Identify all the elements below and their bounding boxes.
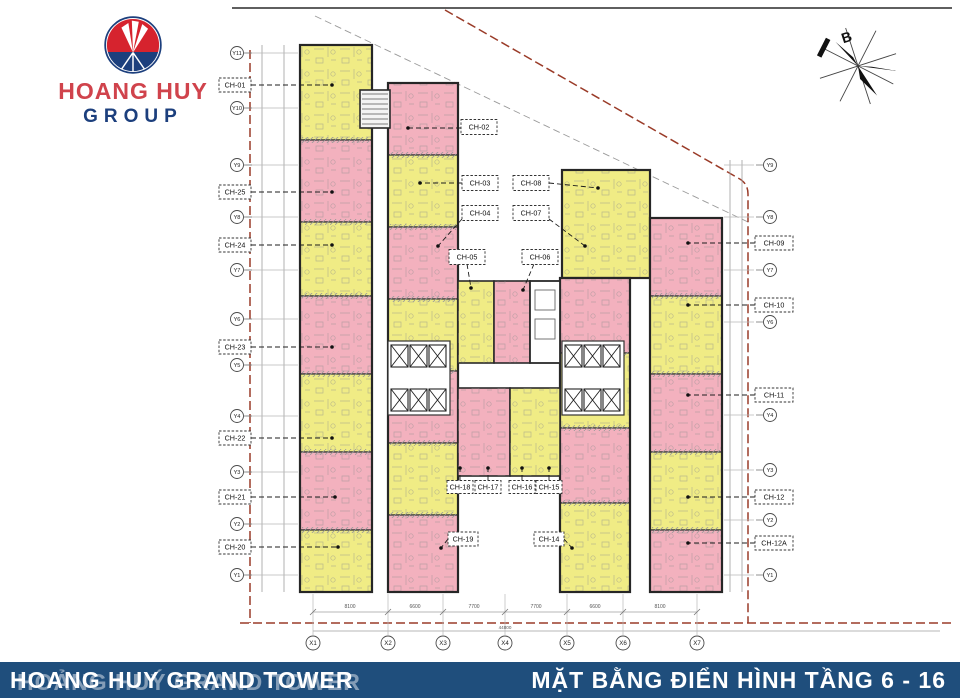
leader-dot (570, 546, 574, 550)
dimension-text: 7700 (468, 604, 479, 610)
leader-dot (330, 243, 334, 247)
leader-dot (596, 186, 600, 190)
leader-dot (330, 83, 334, 87)
unit-furniture-detail (300, 452, 372, 530)
project-title-text: HOANG HUY GRAND TOWER (10, 667, 353, 693)
balcony-hatch (562, 500, 628, 506)
unit-furniture-detail (510, 388, 560, 476)
unit-label: CH-23 (225, 343, 246, 352)
unit-label: CH-12A (761, 539, 787, 548)
axis-bubble-label: Y3 (234, 470, 241, 476)
leader-dot (458, 466, 462, 470)
footer-bar: HOẢNG HUÝ GRAND TOWER HOANG HUY GRAND TO… (0, 662, 960, 698)
dimension-text: 6600 (589, 604, 600, 610)
balcony-hatch (302, 449, 370, 455)
unit-label: CH-19 (453, 535, 474, 544)
leader-dot (686, 241, 690, 245)
plan-sheet: CH-01CH-25CH-24CH-23CH-22CH-21CH-20CH-09… (0, 0, 960, 698)
balcony-hatch (652, 371, 720, 377)
unit-label: CH-12 (764, 493, 785, 502)
unit-label: CH-14 (539, 535, 560, 544)
leader-dot (333, 495, 337, 499)
balcony-hatch (390, 152, 456, 158)
unit-label: CH-16 (512, 483, 533, 492)
axis-bubble-label: Y9 (767, 163, 774, 169)
unit-furniture-detail (650, 296, 722, 374)
leader-dot (521, 288, 525, 292)
leader-dot (330, 345, 334, 349)
axis-bubble-label: Y3 (767, 468, 774, 474)
unit-label: CH-09 (764, 239, 785, 248)
logo-name: HOANG HUY (28, 78, 238, 105)
unit-furniture-detail (388, 443, 458, 515)
axis-bubble-label: X2 (384, 640, 392, 647)
unit-furniture-detail (300, 374, 372, 452)
unit-furniture-detail (560, 428, 630, 503)
unit-furniture-detail (650, 374, 722, 452)
project-title: HOẢNG HUÝ GRAND TOWER HOANG HUY GRAND TO… (10, 667, 353, 694)
unit-furniture-detail (458, 281, 494, 363)
balcony-hatch (302, 371, 370, 377)
unit-label: CH-07 (521, 209, 542, 218)
axis-bubble-label: X5 (563, 640, 571, 647)
leader-dot (547, 466, 551, 470)
axis-bubble-label: Y8 (767, 215, 774, 221)
unit-label: CH-20 (225, 543, 246, 552)
leader-dot (418, 181, 422, 185)
axis-bubble-label: Y4 (767, 413, 774, 419)
unit-label: CH-05 (457, 253, 478, 262)
core-room (535, 290, 555, 310)
unit-label: CH-08 (521, 179, 542, 188)
unit-label: CH-17 (478, 483, 499, 492)
unit-furniture-detail (300, 530, 372, 592)
leader-dot (406, 126, 410, 130)
axis-bubble-label: X6 (619, 640, 627, 647)
axis-bubble-label: Y6 (234, 317, 241, 323)
unit-label: CH-03 (470, 179, 491, 188)
leader-dot (520, 466, 524, 470)
leader-dot (686, 393, 690, 397)
dimension-text: 8100 (344, 604, 355, 610)
axis-bubble-label: Y7 (234, 268, 241, 274)
unit-furniture-detail (388, 83, 458, 155)
balcony-hatch (302, 137, 370, 143)
leader-dot (336, 545, 340, 549)
leader-dot (583, 244, 587, 248)
unit-label: CH-25 (225, 188, 246, 197)
leader-dot (330, 436, 334, 440)
unit-label: CH-18 (450, 483, 471, 492)
unit-furniture-detail (388, 515, 458, 592)
axis-bubble-label: Y2 (767, 518, 774, 524)
unit-furniture-detail (494, 281, 530, 363)
leader-dot (330, 190, 334, 194)
axis-bubble-label: Y6 (767, 320, 774, 326)
unit-label: CH-11 (764, 391, 784, 400)
axis-bubble-label: X1 (309, 640, 317, 647)
unit-furniture-detail (650, 452, 722, 530)
leader-dot (686, 541, 690, 545)
dimension-text: 7700 (530, 604, 541, 610)
compass-north-icon: B (800, 10, 910, 115)
leader-dot (686, 495, 690, 499)
unit-label: CH-15 (539, 483, 560, 492)
dimension-total: 44800 (499, 625, 512, 630)
balcony-hatch (390, 224, 456, 230)
core-room (535, 319, 555, 339)
unit-label: CH-04 (470, 209, 491, 218)
balcony-hatch (390, 512, 456, 518)
balcony-hatch (302, 219, 370, 225)
balcony-hatch (652, 449, 720, 455)
unit-furniture-detail (300, 222, 372, 296)
axis-bubble-label: X7 (693, 640, 701, 647)
balcony-hatch (652, 527, 720, 533)
compass-label: B (839, 28, 854, 46)
balcony-hatch (390, 440, 456, 446)
axis-bubble-label: Y9 (234, 163, 241, 169)
balcony-hatch (390, 296, 456, 302)
axis-bubble-label: Y2 (234, 522, 241, 528)
axis-bubble-label: Y7 (767, 268, 774, 274)
axis-bubble-label: Y1 (234, 573, 241, 579)
unit-furniture-detail (562, 170, 650, 278)
leader-dot (436, 244, 440, 248)
logo-emblem-icon (104, 16, 162, 74)
logo-subname: GROUP (28, 106, 238, 128)
unit-label: CH-02 (469, 123, 490, 132)
unit-furniture-detail (458, 388, 510, 476)
sheet-title: MẶT BẰNG ĐIỂN HÌNH TẦNG 6 - 16 (531, 667, 946, 694)
axis-bubble-label: Y8 (234, 215, 241, 221)
unit-furniture-detail (650, 530, 722, 592)
axis-bubble-label: Y5 (234, 363, 241, 369)
axis-bubble-label: Y4 (234, 414, 241, 420)
leader-dot (486, 466, 490, 470)
hoang-huy-logo: HOANG HUY GROUP (28, 16, 238, 128)
balcony-hatch (652, 293, 720, 299)
unit-label: CH-06 (530, 253, 551, 262)
unit-label: CH-10 (764, 301, 785, 310)
unit-label: CH-24 (225, 241, 246, 250)
leader-dot (686, 303, 690, 307)
unit-furniture-detail (300, 296, 372, 374)
balcony-hatch (562, 425, 628, 431)
balcony-hatch (302, 293, 370, 299)
unit-furniture-detail (388, 227, 458, 299)
axis-bubble-label: X3 (439, 640, 447, 647)
unit-furniture-detail (650, 218, 722, 296)
leader-dot (439, 546, 443, 550)
balcony-hatch (302, 527, 370, 533)
axis-bubble-label: X4 (501, 640, 509, 647)
axis-bubble-label: Y1 (767, 573, 774, 579)
unit-label: CH-21 (225, 493, 246, 502)
unit-furniture-detail (300, 140, 372, 222)
dimension-text: 6600 (409, 604, 420, 610)
unit-label: CH-22 (225, 434, 246, 443)
unit-furniture-detail (388, 155, 458, 227)
dimension-text: 8100 (654, 604, 665, 610)
leader-dot (469, 286, 473, 290)
